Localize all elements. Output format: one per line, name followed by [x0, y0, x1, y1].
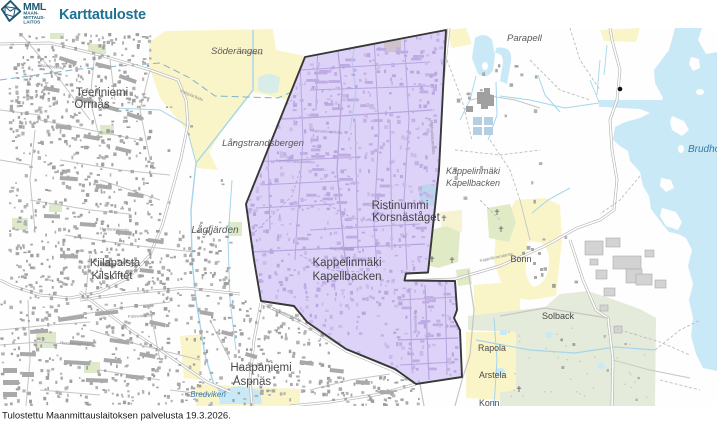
svg-text:Arstela: Arstela: [479, 370, 506, 380]
svg-text:Lågfjärden: Lågfjärden: [191, 224, 239, 236]
svg-text:Korsnäståget: Korsnäståget: [372, 212, 441, 224]
svg-text:Jyrsijankatu: Jyrsijankatu: [413, 310, 419, 333]
svg-text:Söderängen: Söderängen: [211, 46, 263, 57]
svg-text:Kappelinkatu: Kappelinkatu: [330, 246, 355, 251]
svg-text:Tulostettu Maanmittauslaitokse: Tulostettu Maanmittauslaitoksen palvelus…: [2, 411, 231, 422]
svg-text:Ristinummi: Ristinummi: [372, 200, 429, 212]
svg-text:LAITOS: LAITOS: [23, 20, 40, 25]
svg-text:Kilskiftet: Kilskiftet: [92, 270, 133, 282]
svg-text:Långstrandsbergen: Långstrandsbergen: [222, 138, 304, 149]
svg-text:Solback: Solback: [542, 311, 575, 321]
svg-text:Brudholm: Brudholm: [688, 144, 717, 155]
svg-text:Parapell: Parapell: [507, 33, 543, 44]
svg-text:Orrnäs: Orrnäs: [74, 99, 109, 111]
svg-text:Kiilapalsta: Kiilapalsta: [90, 257, 141, 269]
svg-text:Kapellbacken: Kapellbacken: [446, 178, 500, 188]
svg-text:Teeriniemi: Teeriniemi: [76, 87, 128, 99]
svg-text:Rapola: Rapola: [478, 343, 506, 353]
svg-text:Haapaniemi: Haapaniemi: [230, 362, 291, 374]
svg-text:Kappelinmäki: Kappelinmäki: [446, 166, 501, 176]
svg-text:Bredviken: Bredviken: [190, 390, 226, 399]
svg-text:Kappelinmäki: Kappelinmäki: [312, 257, 381, 269]
svg-text:Bonn: Bonn: [510, 254, 531, 264]
svg-text:Karttatuloste: Karttatuloste: [59, 7, 146, 23]
svg-text:Aspnäs: Aspnäs: [233, 376, 272, 388]
svg-text:Kapellbacken: Kapellbacken: [312, 271, 381, 283]
